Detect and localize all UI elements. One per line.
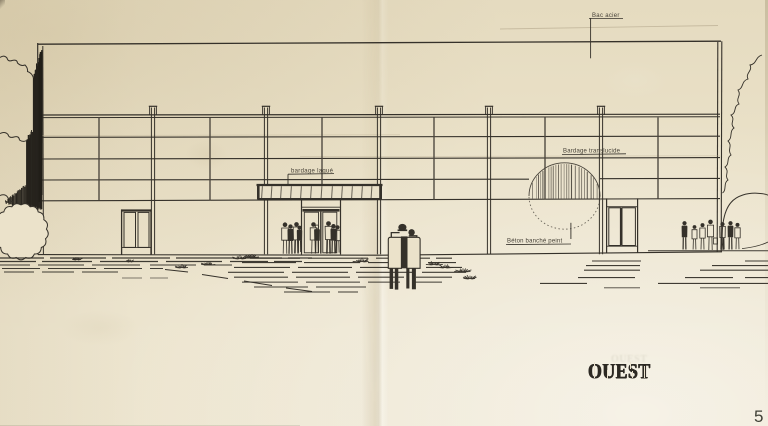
svg-text:Bardage translucide: Bardage translucide xyxy=(563,148,621,154)
svg-text:Béton banché peint: Béton banché peint xyxy=(507,239,562,245)
